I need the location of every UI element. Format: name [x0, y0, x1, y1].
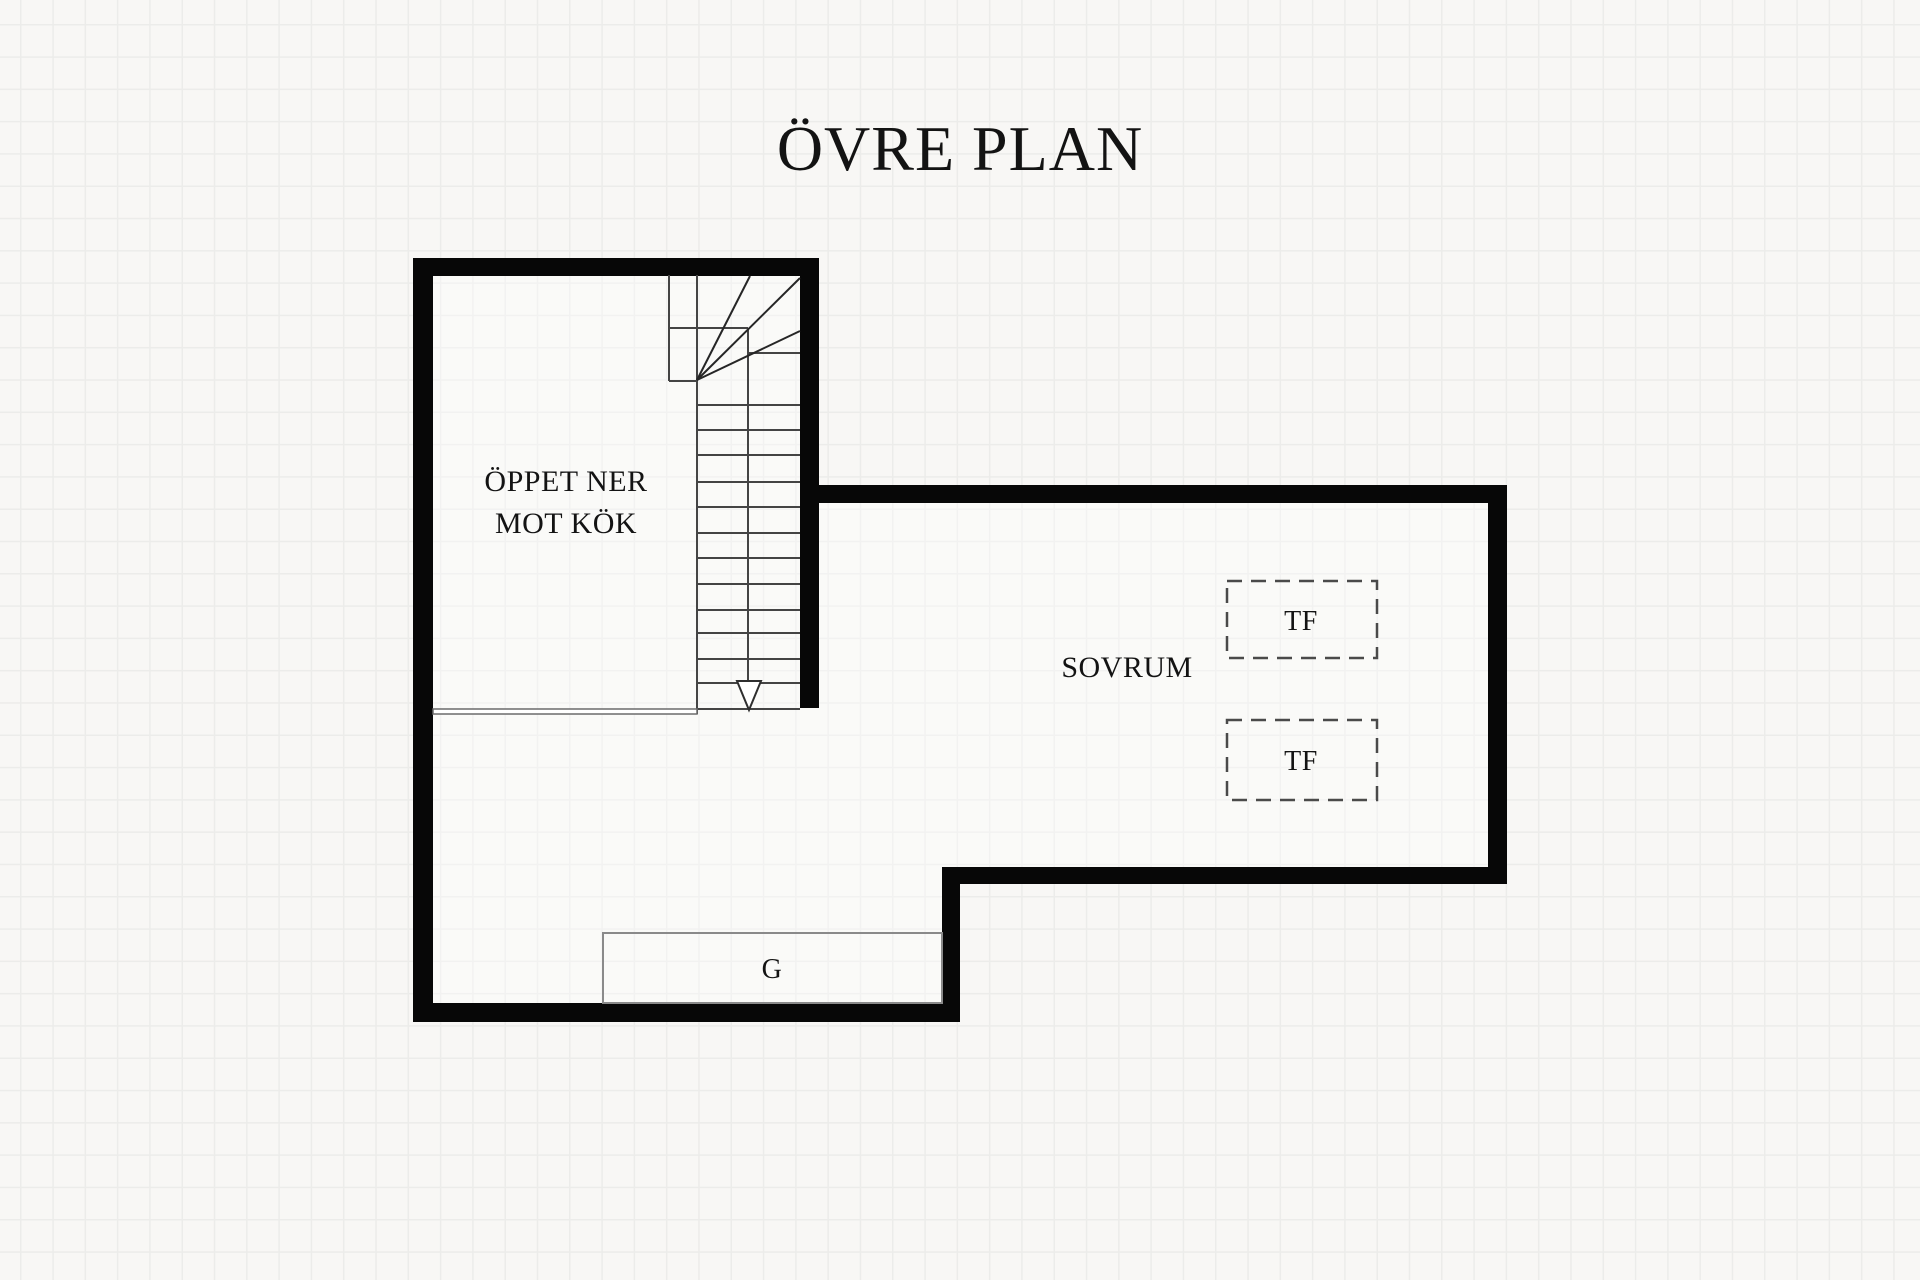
open-to-below-label-line2: MOT KÖK	[495, 507, 637, 540]
roof-window-top-label: TF	[1284, 606, 1318, 637]
plan-title: ÖVRE PLAN	[777, 113, 1143, 184]
stair-wall	[800, 258, 819, 708]
bedroom-top-wall	[800, 485, 1507, 503]
top-wall	[413, 258, 819, 276]
roof-window-bottom-label: TF	[1284, 746, 1318, 777]
interior-floor	[433, 276, 1488, 1003]
railing-line	[433, 709, 697, 714]
wardrobe-label: G	[762, 954, 783, 985]
right-wall	[1488, 485, 1507, 884]
jog-wall	[942, 867, 960, 1022]
bedroom-bottom-wall	[942, 867, 1507, 884]
left-wall	[413, 258, 433, 1022]
floor-plan: ÖVRE PLAN ÖPPET NER MOT KÖK SOVRUM TF TF…	[0, 0, 1920, 1280]
open-to-below-label-line1: ÖPPET NER	[484, 465, 647, 498]
bottom-wall	[413, 1003, 960, 1022]
bedroom-label: SOVRUM	[1061, 651, 1192, 684]
